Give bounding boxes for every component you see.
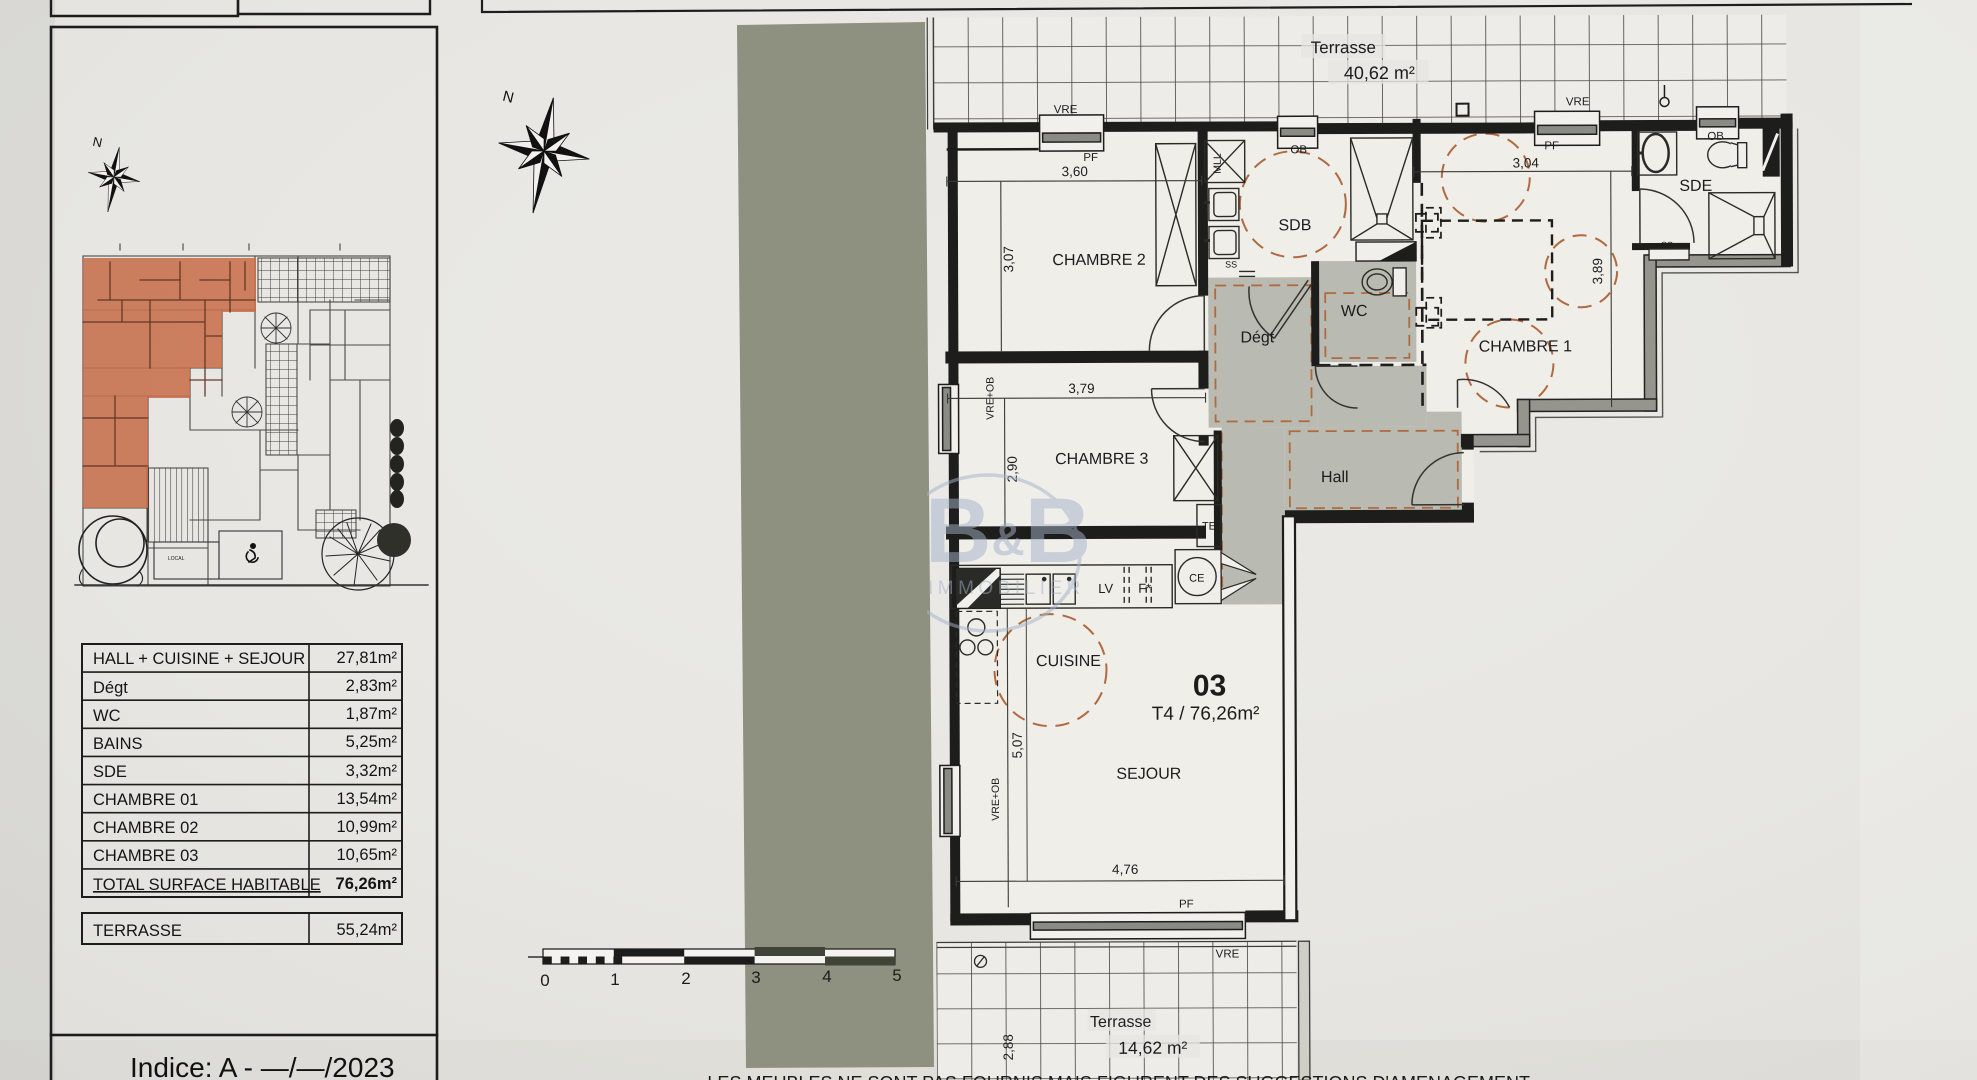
svg-text:1,87m²: 1,87m² [346, 705, 398, 723]
svg-text:SDE: SDE [93, 763, 127, 781]
svg-text:Indice: A - —/—/2023: Indice: A - —/—/2023 [130, 1052, 395, 1080]
svg-text:Terrasse: Terrasse [1090, 1014, 1152, 1031]
svg-text:5,07: 5,07 [1010, 732, 1025, 758]
svg-text:HALL + CUISINE + SEJOUR: HALL + CUISINE + SEJOUR [93, 650, 305, 668]
svg-text:40,62 m²: 40,62 m² [1344, 63, 1415, 83]
svg-text:3,07: 3,07 [1001, 246, 1016, 272]
svg-text:CHAMBRE 01: CHAMBRE 01 [93, 791, 198, 809]
svg-text:VRE: VRE [1566, 96, 1590, 108]
svg-text:T4 / 76,26m²: T4 / 76,26m² [1152, 703, 1260, 724]
svg-text:PF: PF [1179, 899, 1194, 911]
svg-text:VRE+OB: VRE+OB [990, 778, 1002, 821]
svg-text:OB: OB [1707, 131, 1724, 143]
svg-text:Hall: Hall [1321, 469, 1349, 486]
svg-text:3,32m²: 3,32m² [346, 762, 398, 780]
svg-text:Terrasse: Terrasse [1311, 38, 1376, 57]
svg-text:WC: WC [93, 707, 121, 725]
svg-text:1: 1 [610, 970, 619, 989]
svg-text:VRE: VRE [1216, 948, 1240, 960]
svg-text:Dégt: Dégt [93, 679, 128, 697]
svg-text:27,81m²: 27,81m² [336, 649, 397, 667]
svg-text:OB: OB [1290, 144, 1307, 156]
svg-text:LOCAL: LOCAL [168, 556, 185, 562]
svg-text:SEJOUR: SEJOUR [1116, 766, 1181, 783]
svg-text:4: 4 [822, 967, 831, 986]
svg-text:VRE: VRE [1054, 104, 1078, 116]
svg-text:CHAMBRE 02: CHAMBRE 02 [93, 819, 198, 837]
svg-text:CHAMBRE 3: CHAMBRE 3 [1055, 451, 1149, 468]
svg-text:LES MEUBLES NE SONT PAS FOURNI: LES MEUBLES NE SONT PAS FOURNIS MAIS FIG… [707, 1073, 1530, 1080]
svg-text:3,04: 3,04 [1513, 155, 1540, 170]
svg-text:LV: LV [1098, 581, 1113, 596]
svg-text:0: 0 [540, 971, 549, 990]
svg-text:2,88: 2,88 [1001, 1034, 1016, 1060]
svg-text:IMMOBILIER: IMMOBILIER [928, 578, 1085, 599]
svg-text:3,60: 3,60 [1062, 164, 1088, 179]
svg-text:13,54m²: 13,54m² [336, 790, 397, 808]
svg-text:TERRASSE: TERRASSE [93, 922, 182, 940]
svg-text:CHAMBRE 03: CHAMBRE 03 [93, 847, 198, 865]
svg-text:10,99m²: 10,99m² [336, 818, 397, 836]
svg-text:TOTAL SURFACE HABITABLE: TOTAL SURFACE HABITABLE [93, 876, 321, 894]
svg-text:5,25m²: 5,25m² [346, 733, 398, 751]
svg-text:76,26m²: 76,26m² [336, 875, 398, 893]
svg-text:SDB: SDB [1278, 217, 1311, 234]
svg-text:2: 2 [681, 969, 690, 988]
svg-text:SDE: SDE [1679, 178, 1712, 195]
svg-text:PF: PF [1083, 152, 1098, 164]
svg-text:TE: TE [1202, 521, 1216, 533]
svg-text:4,76: 4,76 [1112, 862, 1138, 877]
svg-text:3,79: 3,79 [1068, 381, 1094, 396]
svg-text:WC: WC [1341, 303, 1368, 320]
svg-text:2,83m²: 2,83m² [346, 677, 398, 695]
svg-text:CHAMBRE 1: CHAMBRE 1 [1479, 338, 1573, 355]
svg-text:10,65m²: 10,65m² [336, 846, 397, 864]
svg-text:3: 3 [751, 968, 760, 987]
svg-text:F*: F* [1138, 581, 1151, 596]
svg-text:55,24m²: 55,24m² [336, 921, 397, 939]
svg-text:CE: CE [1189, 573, 1204, 585]
svg-text:5: 5 [892, 966, 901, 985]
svg-text:Dégt: Dégt [1240, 329, 1274, 346]
svg-text:CHAMBRE 2: CHAMBRE 2 [1052, 252, 1146, 269]
svg-text:SS: SS [1225, 259, 1237, 269]
svg-text:3,89: 3,89 [1590, 258, 1605, 284]
svg-text:03: 03 [1193, 670, 1226, 703]
svg-text:SS: SS [1661, 240, 1673, 250]
svg-text:PF: PF [1544, 140, 1559, 152]
svg-text:VRE+OB: VRE+OB [984, 377, 996, 420]
svg-text:CUISINE: CUISINE [1036, 653, 1101, 670]
svg-text:BAINS: BAINS [93, 735, 143, 753]
svg-text:MLL: MLL [1212, 153, 1224, 174]
svg-text:14,62 m²: 14,62 m² [1118, 1038, 1187, 1058]
